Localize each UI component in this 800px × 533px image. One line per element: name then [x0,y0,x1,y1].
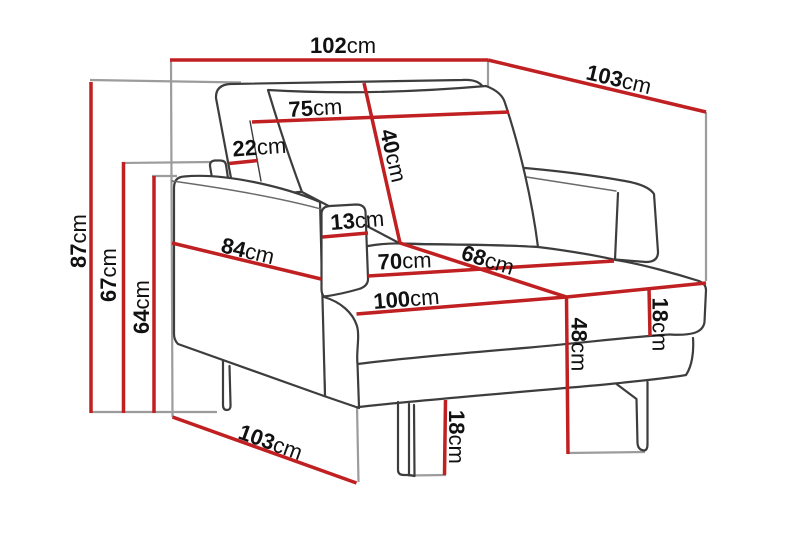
svg-text:64cm: 64cm [129,280,154,334]
svg-text:100cm: 100cm [372,284,440,314]
svg-text:18cm: 18cm [648,298,673,352]
svg-text:67cm: 67cm [96,248,121,302]
svg-text:75cm: 75cm [288,94,343,122]
svg-text:22cm: 22cm [232,133,287,162]
svg-text:102cm: 102cm [310,33,376,58]
svg-text:48cm: 48cm [567,318,592,372]
svg-text:18cm: 18cm [444,410,469,464]
svg-text:13cm: 13cm [329,206,385,235]
svg-text:87cm: 87cm [66,214,91,268]
svg-text:70cm: 70cm [377,247,432,274]
